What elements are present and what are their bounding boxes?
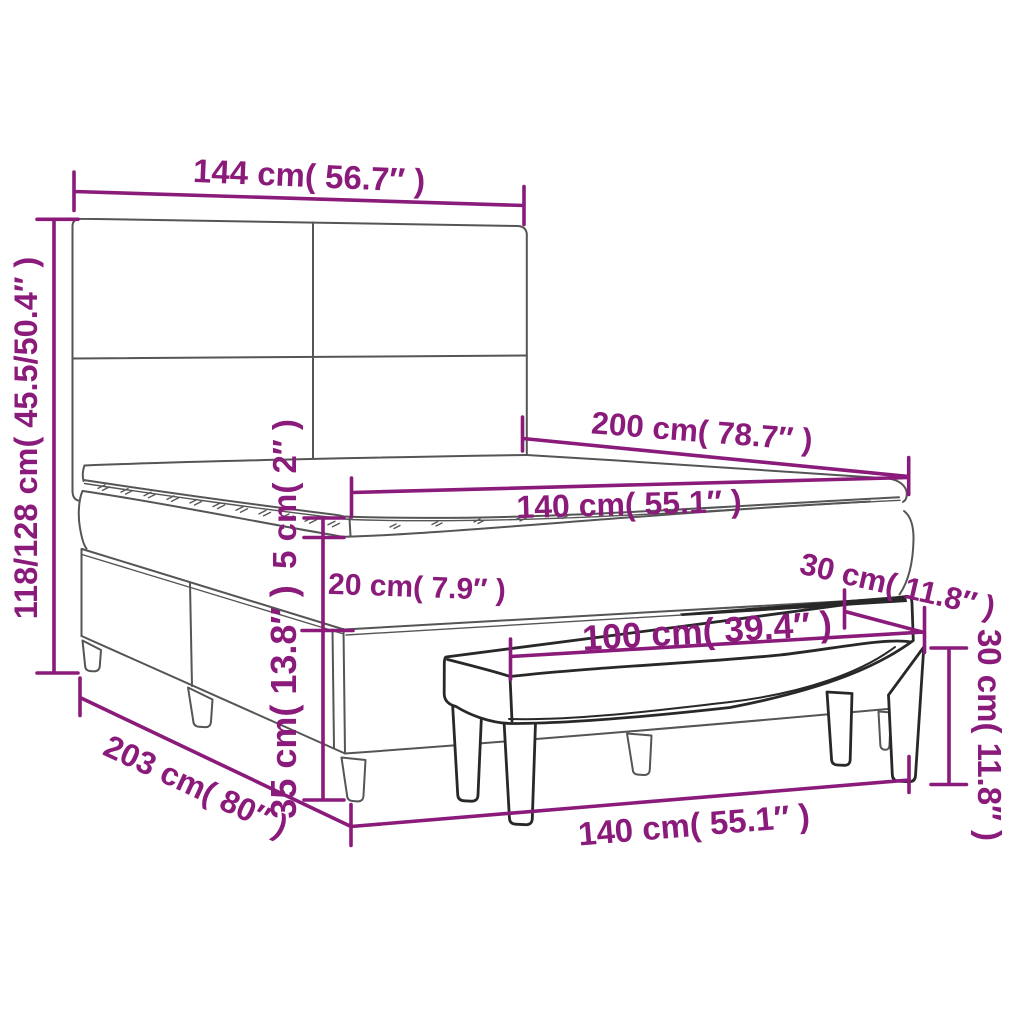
svg-text:140 cm( 55.1″ ): 140 cm( 55.1″ ) (516, 483, 742, 525)
svg-text:118/128 cm( 45.5/50.4″ ): 118/128 cm( 45.5/50.4″ ) (8, 257, 44, 620)
svg-text:5 cm( 2″ ): 5 cm( 2″ ) (266, 419, 303, 569)
svg-text:35 cm( 13.8″ ): 35 cm( 13.8″ ) (263, 585, 304, 818)
svg-text:30 cm( 11.8″ ): 30 cm( 11.8″ ) (971, 629, 1008, 841)
svg-text:144 cm( 56.7″ ): 144 cm( 56.7″ ) (192, 152, 426, 199)
svg-text:20 cm( 7.9″ ): 20 cm( 7.9″ ) (328, 568, 507, 607)
